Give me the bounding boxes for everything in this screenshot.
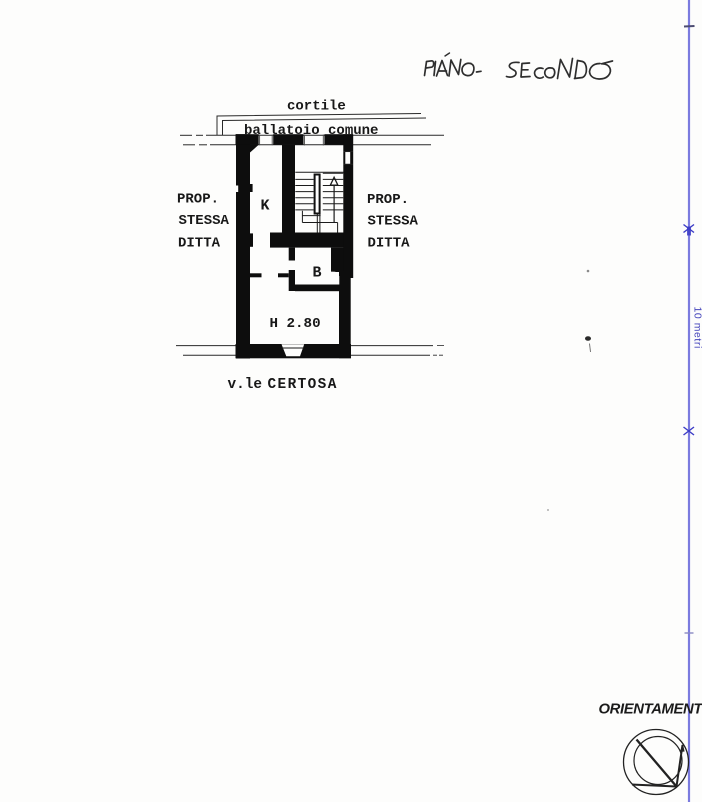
- svg-text:H 2.80: H 2.80: [270, 316, 321, 332]
- svg-text:10 metri: 10 metri: [692, 307, 702, 349]
- svg-text:PROP.: PROP.: [367, 192, 409, 208]
- svg-text:ballatoio comune: ballatoio comune: [244, 123, 378, 139]
- svg-text:PROP.: PROP.: [177, 192, 219, 208]
- svg-text:ORIENTAMENTO: ORIENTAMENTO: [599, 702, 702, 718]
- svg-text:B: B: [313, 265, 322, 282]
- svg-text:K: K: [261, 198, 270, 215]
- svg-text:CERTOSA: CERTOSA: [268, 377, 338, 393]
- svg-text:STESSA: STESSA: [368, 214, 419, 230]
- svg-text:v.le: v.le: [228, 377, 263, 393]
- svg-text:DITTA: DITTA: [368, 236, 411, 252]
- svg-text:DITTA: DITTA: [178, 236, 221, 252]
- svg-text:STESSA: STESSA: [179, 213, 230, 229]
- svg-text:cortile: cortile: [287, 99, 346, 115]
